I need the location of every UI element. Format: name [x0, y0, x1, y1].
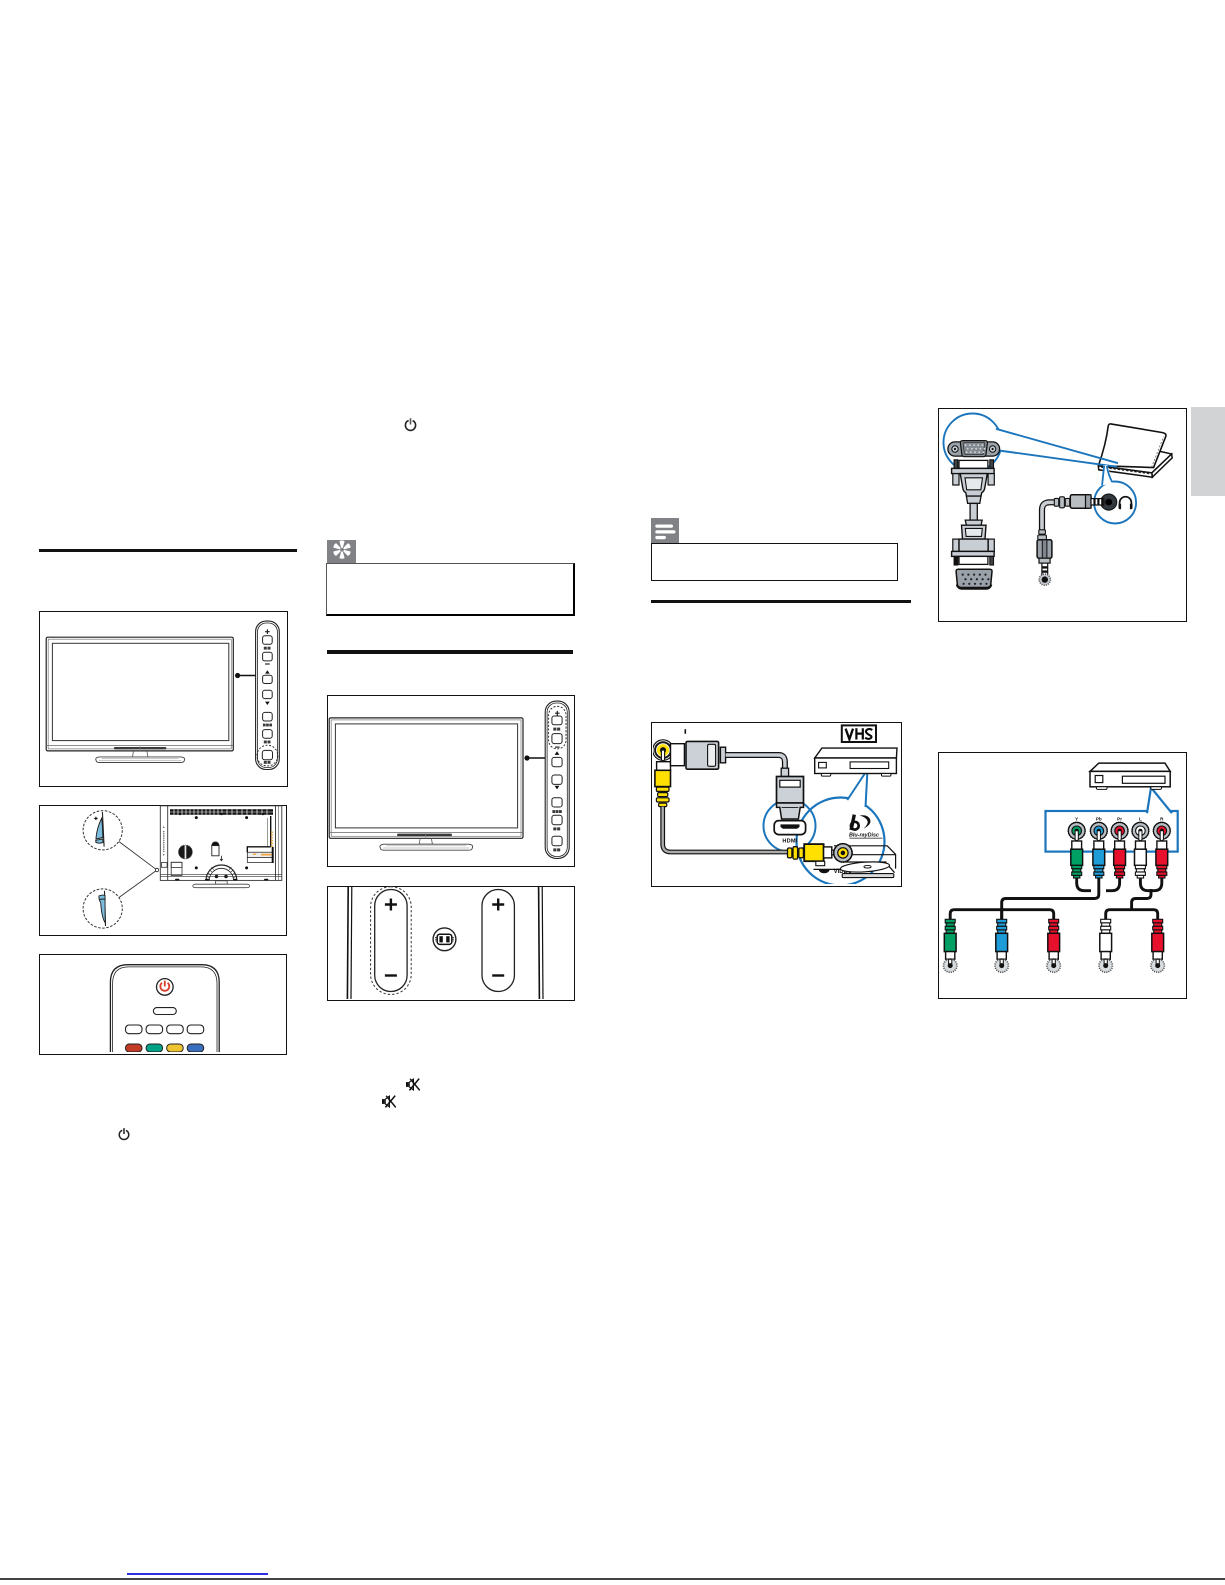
svg-text:L: L: [1139, 817, 1142, 822]
svg-text:HDMI: HDMI: [782, 838, 797, 844]
svg-text:Pr: Pr: [1117, 817, 1122, 822]
svg-text:Pb: Pb: [1096, 817, 1102, 822]
svg-text:Blu-rayDisc: Blu-rayDisc: [849, 832, 879, 838]
svg-text:Y: Y: [1075, 817, 1078, 822]
svg-text:R: R: [1160, 817, 1164, 822]
